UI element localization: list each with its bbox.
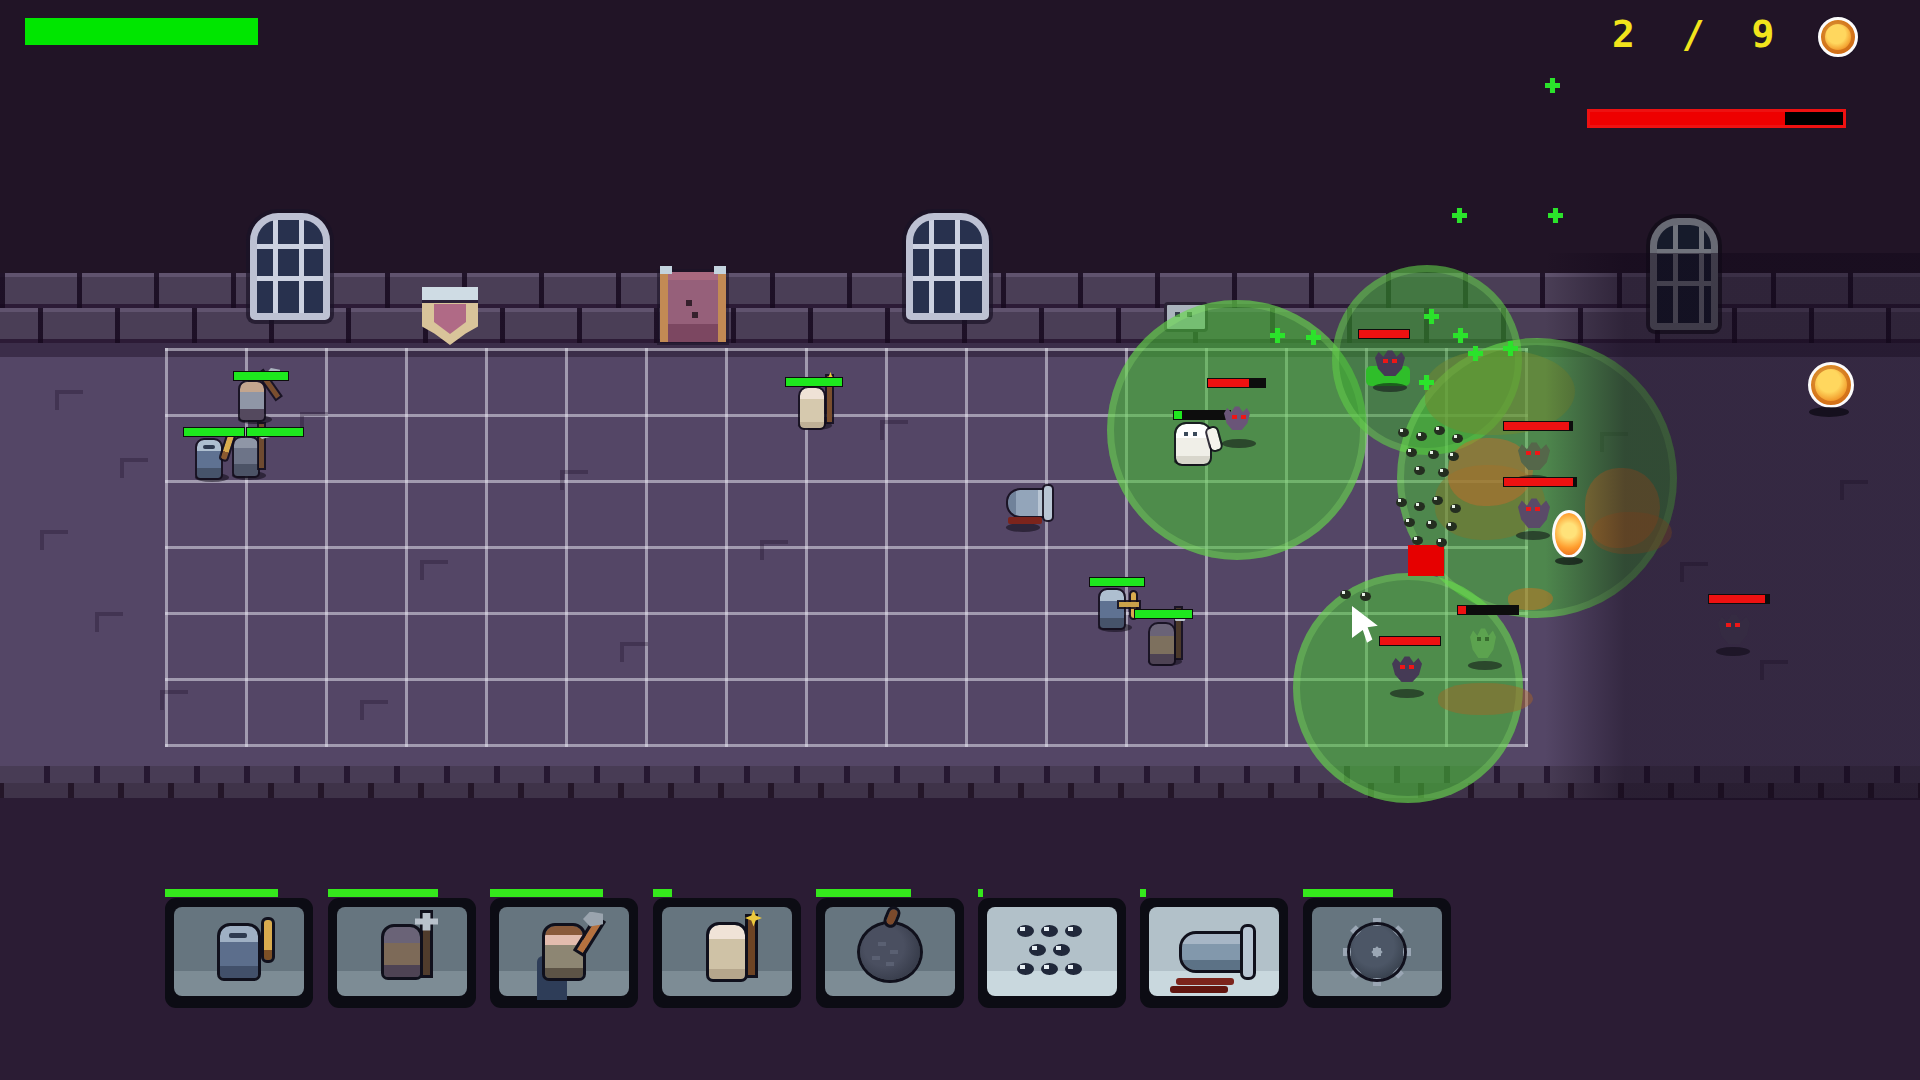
- floor-mark: [300, 412, 328, 432]
- card-panel: [1149, 907, 1279, 996]
- unit-health-bar: [1173, 410, 1231, 420]
- health-fill: [1504, 478, 1573, 486]
- red-damage-marker: [1408, 545, 1444, 576]
- player-health-bar: [25, 18, 258, 45]
- floor-mark: [95, 612, 123, 632]
- knight-sword-icon: [220, 926, 258, 978]
- health-fill: [234, 372, 288, 380]
- floor-mark: [120, 458, 148, 478]
- wall-window: [250, 213, 330, 320]
- health-fill: [1208, 379, 1249, 387]
- floor-mark: [760, 540, 788, 560]
- health-fill: [1458, 606, 1466, 614]
- card-bug-swarm[interactable]: [978, 898, 1126, 1008]
- drop-shadow: [1516, 531, 1550, 540]
- unit-sprite-axe-knight: [240, 382, 264, 420]
- unit-sprite-halberd-knight: [234, 438, 258, 476]
- card-panel: [174, 907, 304, 996]
- drop-shadow: [1716, 647, 1750, 656]
- bug-swarm-cluster: [1340, 590, 1351, 599]
- enemy-health-bar: [1358, 329, 1410, 339]
- card-axe-warrior[interactable]: [490, 898, 638, 1008]
- spike-mine-icon: [1350, 925, 1404, 979]
- flame-orb-pickup[interactable]: [1552, 510, 1586, 558]
- wall-window: [906, 213, 989, 320]
- axe-warrior-icon: [545, 926, 583, 978]
- floor-mark: [880, 420, 908, 440]
- drop-shadow: [1222, 439, 1256, 448]
- card-knight-sword[interactable]: [165, 898, 313, 1008]
- bomb-icon: [860, 924, 920, 980]
- health-fill: [1174, 411, 1182, 419]
- boss-health-bar: [1587, 109, 1846, 128]
- floor-mark: [160, 690, 188, 710]
- card-cooldown-bar: [978, 889, 983, 897]
- unit-health-bar: [233, 371, 289, 381]
- enemy-health-bar: [1708, 594, 1770, 604]
- boss-health-fill: [1590, 112, 1785, 125]
- floor-mark: [560, 470, 588, 490]
- health-fill: [184, 428, 244, 436]
- enemy-health-bar: [1503, 421, 1573, 431]
- health-fill: [1090, 578, 1144, 586]
- unit-sprite-hood-archer: [1150, 624, 1174, 664]
- crossbow-pikeman-icon: [384, 927, 420, 977]
- floor-mark: [40, 530, 68, 550]
- drop-shadow: [1390, 689, 1424, 698]
- cannon-icon: [1182, 934, 1246, 970]
- unit-health-bar: [1134, 609, 1193, 619]
- card-cannon[interactable]: [1140, 898, 1288, 1008]
- enemy-health-bar: [1207, 378, 1266, 388]
- card-spike-mine[interactable]: [1303, 898, 1451, 1008]
- enemy-health-bar: [1379, 636, 1441, 646]
- card-panel: [987, 907, 1117, 996]
- card-panel: [662, 907, 792, 996]
- floor-mark: [420, 560, 448, 580]
- health-fill: [247, 428, 303, 436]
- floor-mark: [620, 642, 648, 662]
- card-panel: [337, 907, 467, 996]
- health-fill: [1359, 330, 1409, 338]
- unit-health-bar: [246, 427, 304, 437]
- unit-sprite-crossbow-knight: [1100, 590, 1124, 628]
- card-cooldown-bar: [653, 889, 672, 897]
- card-bomb[interactable]: [816, 898, 964, 1008]
- unit-health-bar: [1089, 577, 1145, 587]
- card-panel: [499, 907, 629, 996]
- health-fill: [1709, 595, 1765, 603]
- health-fill: [1504, 422, 1569, 430]
- game-scene: 2 / 9: [0, 0, 1920, 1080]
- card-cooldown-bar: [1303, 889, 1393, 897]
- card-crossbow-pikeman[interactable]: [328, 898, 476, 1008]
- unit-sprite-mage: [800, 388, 824, 428]
- mage-icon: [709, 925, 745, 979]
- unit-sprite-cannon-unit: [1008, 490, 1048, 516]
- unit-health-bar: [183, 427, 245, 437]
- card-cooldown-bar: [1140, 889, 1146, 897]
- health-fill: [1380, 637, 1440, 645]
- bug-swarm-cluster: [1398, 428, 1409, 437]
- health-fill: [786, 378, 842, 386]
- wall-door: [660, 272, 726, 342]
- card-cooldown-bar: [816, 889, 911, 897]
- wave-counter: 2 / 9: [1612, 12, 1786, 56]
- bug-swarm-cluster: [1396, 498, 1407, 507]
- bug-swarm-icon: [1017, 925, 1087, 979]
- coin-icon: [1818, 17, 1858, 57]
- drop-shadow: [1006, 523, 1040, 532]
- heal-aoe-circle: [1107, 300, 1367, 560]
- coin-pickup[interactable]: [1808, 362, 1854, 408]
- card-panel: [1312, 907, 1442, 996]
- right-darkness-overlay: [1545, 253, 1920, 800]
- floor-mark: [360, 700, 388, 720]
- enemy-health-bar: [1457, 605, 1519, 615]
- unit-sprite-golem: [1176, 424, 1210, 464]
- drop-shadow: [1468, 661, 1502, 670]
- floor-mark: [55, 390, 83, 410]
- card-mage[interactable]: [653, 898, 801, 1008]
- card-cooldown-bar: [328, 889, 438, 897]
- enemy-health-bar: [1503, 477, 1577, 487]
- drop-shadow: [1373, 383, 1407, 392]
- unit-sprite-sword-knight: [197, 440, 221, 478]
- card-cooldown-bar: [165, 889, 278, 897]
- health-fill: [1135, 610, 1192, 618]
- card-cooldown-bar: [490, 889, 603, 897]
- card-panel: [825, 907, 955, 996]
- unit-health-bar: [785, 377, 843, 387]
